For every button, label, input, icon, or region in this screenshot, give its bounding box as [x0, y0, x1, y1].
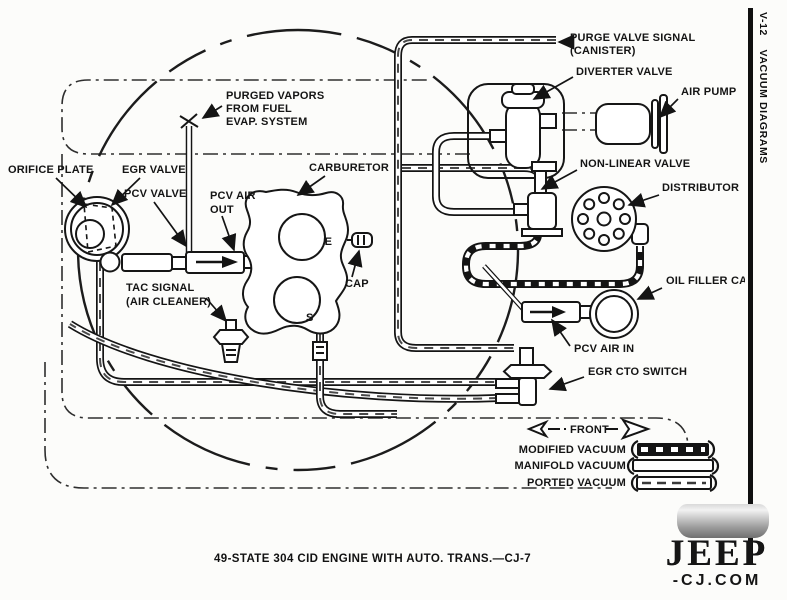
site-watermark: JEEP -CJ.COM: [651, 492, 783, 596]
label-purge-valve-signal: PURGE VALVE SIGNAL: [570, 32, 696, 44]
page-header-vertical: V-12 VACUUM DIAGRAMS: [757, 12, 769, 164]
hose-purged-vapors-pipe: [180, 114, 198, 256]
legend-label-manifold: MANIFOLD VACUUM: [514, 460, 626, 472]
egr-cto-switch-assembly: [496, 348, 551, 405]
label-purged-vapors-2: FROM FUEL: [226, 103, 292, 115]
tac-air-cleaner-fitting: [214, 320, 248, 362]
hose-tac-diagonal: [70, 324, 498, 399]
front-arrow-icon: [623, 420, 648, 438]
label-port-e: E: [325, 236, 332, 248]
label-egr-valve: EGR VALVE: [122, 164, 186, 176]
label-distributor: DISTRIBUTOR: [662, 182, 739, 194]
label-cap: CAP: [345, 278, 369, 290]
label-carburetor: CARBURETOR: [309, 162, 389, 174]
legend-label-ported: PORTED VACUUM: [527, 477, 626, 489]
non-linear-valve-assembly: [514, 162, 562, 236]
vacuum-legend: MODIFIED VACUUM MANIFOLD VACUUM PORTED V…: [514, 441, 718, 491]
label-purged-vapors-1: PURGED VAPORS: [226, 90, 324, 102]
label-oil-filler-cap: OIL FILLER CAP: [666, 275, 745, 287]
label-egr-cto-switch: EGR CTO SWITCH: [588, 366, 687, 378]
vacuum-diagram: PURGE VALVE SIGNAL (CANISTER) DIVERTER V…: [0, 0, 745, 545]
air-pump-assembly: [596, 95, 667, 153]
label-non-linear-valve: NON-LINEAR VALVE: [580, 158, 690, 170]
legend-sample-manifold: [628, 458, 718, 474]
legend-sample-modified: [632, 441, 714, 458]
label-tac-signal-1: TAC SIGNAL: [126, 282, 194, 294]
label-purged-vapors-3: EVAP. SYSTEM: [226, 116, 307, 128]
e-port-cap: [352, 233, 372, 247]
label-pcv-air-in: PCV AIR IN: [574, 343, 634, 355]
figure-caption: 49-STATE 304 CID ENGINE WITH AUTO. TRANS…: [0, 553, 745, 565]
egr-valve-assembly: [65, 197, 129, 261]
pcv-valve-assembly: [101, 252, 263, 273]
page-code: V-12: [757, 12, 769, 36]
watermark-suffix: -CJ.COM: [651, 572, 783, 590]
section-title: VACUUM DIAGRAMS: [757, 50, 769, 164]
label-orifice-plate: ORIFICE PLATE: [8, 164, 94, 176]
label-front: FRONT: [570, 424, 609, 436]
front-indicator: FRONT: [529, 420, 648, 438]
label-purge-valve-signal-2: (CANISTER): [570, 45, 636, 57]
label-pcv-air-out-1: PCV AIR: [210, 190, 256, 202]
label-port-s: S: [306, 312, 313, 324]
manual-page: PURGE VALVE SIGNAL (CANISTER) DIVERTER V…: [0, 0, 787, 600]
label-air-pump: AIR PUMP: [681, 86, 736, 98]
label-pcv-valve: PCV VALVE: [124, 188, 187, 200]
legend-sample-ported: [632, 475, 716, 491]
oil-filler-assembly: [522, 290, 638, 338]
distributor-assembly: [572, 187, 648, 251]
legend-label-modified: MODIFIED VACUUM: [519, 444, 626, 456]
label-tac-signal-2: (AIR CLEANER): [126, 296, 211, 308]
hose-carb-s-port: [320, 334, 397, 414]
page-edge-rule: [748, 8, 753, 564]
label-pcv-air-out-2: OUT: [210, 204, 234, 216]
s-port-coupler: [313, 342, 327, 360]
watermark-brand: JEEP: [651, 532, 783, 575]
label-diverter-valve: DIVERTER VALVE: [576, 66, 673, 78]
